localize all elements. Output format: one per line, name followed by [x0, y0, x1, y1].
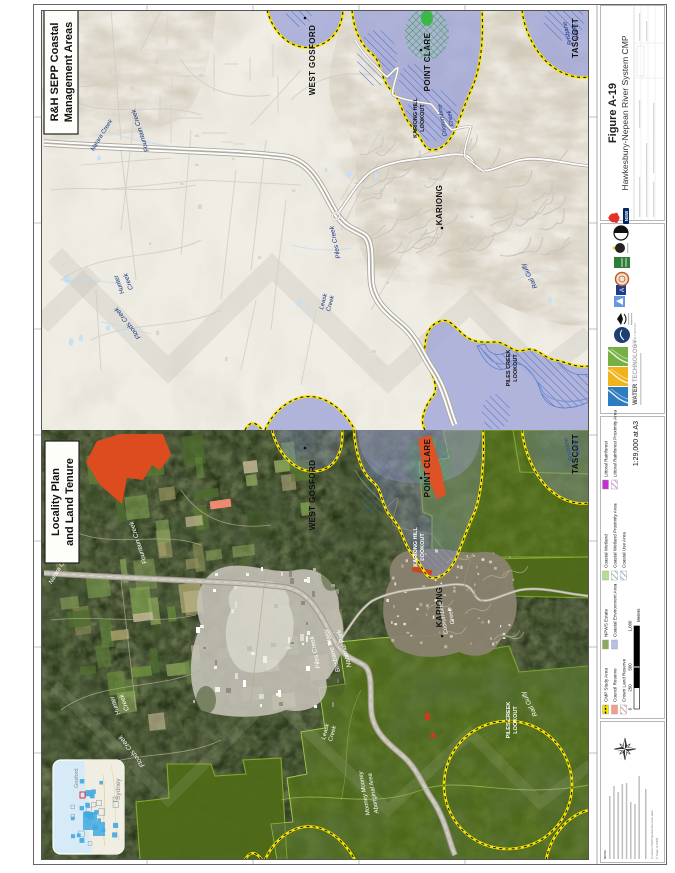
svg-text:A: A — [620, 288, 626, 292]
svg-text:1,000: 1,000 — [628, 620, 633, 632]
svg-text:Figure A-19: Figure A-19 — [607, 83, 619, 143]
svg-text:CMP Study Area: CMP Study Area — [604, 668, 609, 702]
svg-text:© State of NSW: © State of NSW — [655, 838, 659, 859]
svg-text:Coastal Environment Area: Coastal Environment Area — [613, 583, 618, 637]
svg-text:Crown Land Reserve: Crown Land Reserve — [622, 658, 627, 702]
svg-text:Hawkesbury-Nepean River System: Hawkesbury-Nepean River System CMP — [620, 35, 630, 190]
svg-text:Contains NSW Spatial Services: Contains NSW Spatial Services data — [650, 810, 654, 859]
svg-text:NSW: NSW — [624, 210, 629, 221]
svg-text:NPWS Estate: NPWS Estate — [604, 608, 609, 637]
svg-text:SYDNEY WATER: SYDNEY WATER — [633, 322, 637, 346]
svg-text:Coastal Wetland Proximity Area: Coastal Wetland Proximity Area — [613, 503, 618, 568]
svg-text:Council Reserve: Council Reserve — [613, 668, 618, 702]
svg-text:Coastal Use Area: Coastal Use Area — [622, 532, 627, 568]
svg-text:250: 250 — [628, 684, 633, 692]
svg-text:Littoral Rainforest Proximity: Littoral Rainforest Proximity Area — [613, 410, 618, 477]
svg-text:Littoral Rainforest: Littoral Rainforest — [604, 440, 609, 477]
svg-text:Coastal Wetland: Coastal Wetland — [604, 534, 609, 568]
svg-text:WATER TECHNOLOGY: WATER TECHNOLOGY — [633, 340, 639, 405]
svg-text:0: 0 — [628, 707, 633, 710]
svg-text:Meters: Meters — [636, 608, 641, 622]
svg-text:500: 500 — [628, 663, 633, 671]
svg-text:1:29,000 at A3: 1:29,000 at A3 — [633, 421, 640, 466]
svg-text:NOTE:: NOTE: — [603, 850, 607, 859]
